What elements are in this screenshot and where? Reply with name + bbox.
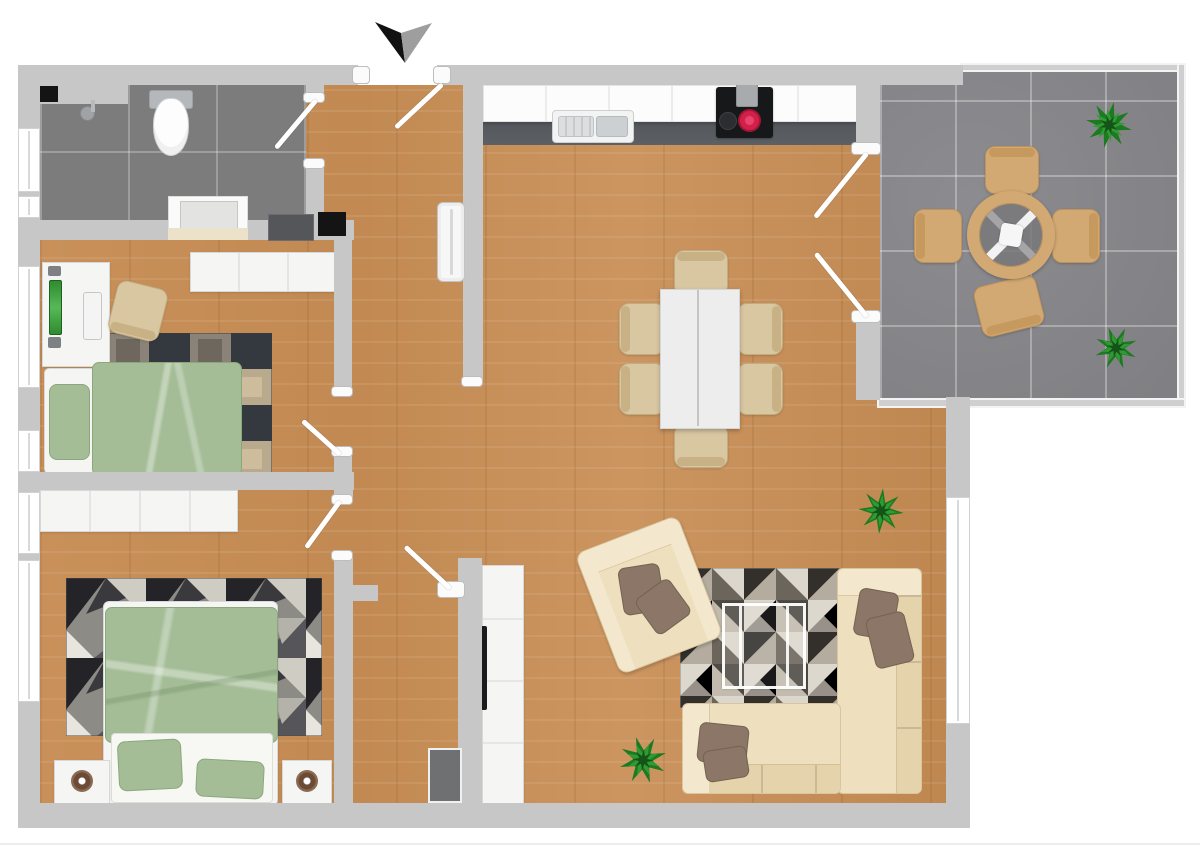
window-office-2 xyxy=(18,430,40,472)
living-plant-left xyxy=(602,720,684,800)
nightstand-left-bowl xyxy=(71,770,93,792)
dining-chair-right-2 xyxy=(737,363,783,415)
master-pillow-right xyxy=(195,758,265,800)
entry-door-jamb-right xyxy=(433,66,451,84)
doormat xyxy=(428,748,462,803)
coffee-table-shelf-line-2 xyxy=(786,606,789,686)
toilet-bowl xyxy=(153,98,189,156)
dryer xyxy=(318,212,346,236)
dining-table-seam xyxy=(697,290,699,426)
wall-balcony-left-bottom xyxy=(856,316,880,400)
window-office-1 xyxy=(18,266,40,388)
balcony-table xyxy=(967,191,1055,279)
sink-basin xyxy=(596,116,628,137)
wall-living-right-bottom xyxy=(946,724,970,828)
balcony-chair-left xyxy=(914,209,962,263)
wall-master-stub xyxy=(353,585,378,601)
wall-living-right-top xyxy=(946,397,970,497)
window-master-1 xyxy=(18,492,40,554)
dining-chair-right-1 xyxy=(737,303,783,355)
desk-speaker-bottom xyxy=(48,337,61,348)
shower-mat xyxy=(40,86,58,102)
wall-office-right-top xyxy=(334,240,352,392)
wall-balcony-left-top xyxy=(856,85,880,149)
sink-drainer xyxy=(558,116,594,137)
vanity-basin xyxy=(180,201,238,229)
entrance-arrow-icon xyxy=(368,16,440,68)
desk-keyboard xyxy=(83,292,102,340)
kitchen-counter xyxy=(483,85,862,122)
exterior-edge-line xyxy=(0,843,1200,845)
stove-burner-dark xyxy=(719,112,737,130)
single-bed-pillow xyxy=(49,384,90,460)
balcony-chair-right xyxy=(1052,209,1100,263)
balcony-chair-top xyxy=(985,146,1039,194)
dining-chair-left-2 xyxy=(619,363,665,415)
office-wardrobe xyxy=(190,252,337,292)
living-door-jamb-top xyxy=(461,376,483,387)
vanity-counter-strip xyxy=(168,228,248,240)
bathroom-door-jamb-bottom xyxy=(303,158,325,169)
window-bathroom-1 xyxy=(18,128,40,192)
wall-bottom xyxy=(18,803,970,828)
coffee-table-glass xyxy=(722,603,806,689)
dining-chair-bottom xyxy=(674,424,728,468)
kitchen-backsplash-strip xyxy=(483,120,862,145)
radiator-groove xyxy=(450,209,453,275)
master-wardrobe xyxy=(40,490,238,532)
wall-room-divider xyxy=(18,472,354,490)
single-bed-duvet xyxy=(92,362,242,476)
master-door-jamb-bottom xyxy=(331,550,353,561)
coffee-table-shelf-line-1 xyxy=(739,606,742,686)
wall-top-left xyxy=(18,65,358,85)
tv-sideboard xyxy=(482,565,524,805)
living-plant-right xyxy=(843,468,919,554)
entry-door-jamb-left xyxy=(352,66,370,84)
balcony-plant-top xyxy=(1070,86,1148,164)
balcony-railing-bottom xyxy=(877,398,1186,408)
double-bed-duvet xyxy=(105,607,278,743)
shower-arm xyxy=(91,100,95,112)
dining-chair-left-1 xyxy=(619,303,665,355)
wall-master-right-bottom xyxy=(334,558,353,803)
wall-top-right xyxy=(437,65,963,85)
nightstand-right-bowl xyxy=(296,770,318,792)
office-door-jamb-top xyxy=(331,386,353,397)
balcony-table-ring xyxy=(967,191,1055,279)
desk-monitor xyxy=(49,280,62,335)
sofa-pillow-4 xyxy=(702,745,750,783)
radiator xyxy=(437,202,465,282)
window-living-right xyxy=(946,497,970,724)
wall-hallway-right-upper xyxy=(463,85,483,382)
window-bathroom-2 xyxy=(18,196,40,218)
floor-plan xyxy=(0,0,1200,848)
washing-machine xyxy=(268,214,314,241)
master-pillow-left xyxy=(117,738,184,791)
balcony-railing-top xyxy=(960,63,1186,72)
window-master-2 xyxy=(18,560,40,702)
desk-speaker-top xyxy=(48,266,61,276)
stove-burner-red xyxy=(738,109,761,132)
stove-handle xyxy=(736,84,758,107)
dining-table xyxy=(660,289,740,429)
balcony-plant-bottom xyxy=(1080,312,1152,384)
balcony-railing-right xyxy=(1177,63,1186,408)
